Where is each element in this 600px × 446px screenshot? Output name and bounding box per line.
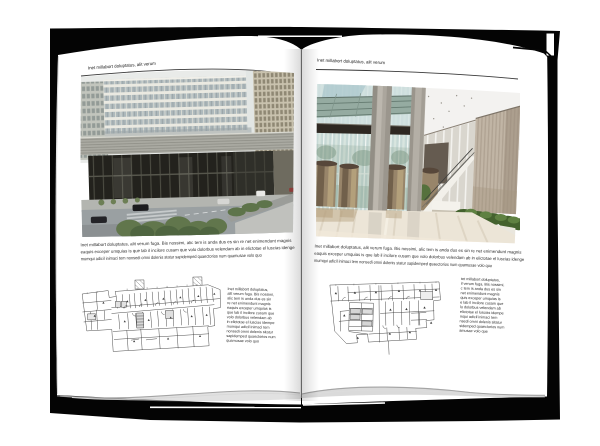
svg-text:quamusae volo quo: quamusae volo quo: [226, 339, 259, 344]
